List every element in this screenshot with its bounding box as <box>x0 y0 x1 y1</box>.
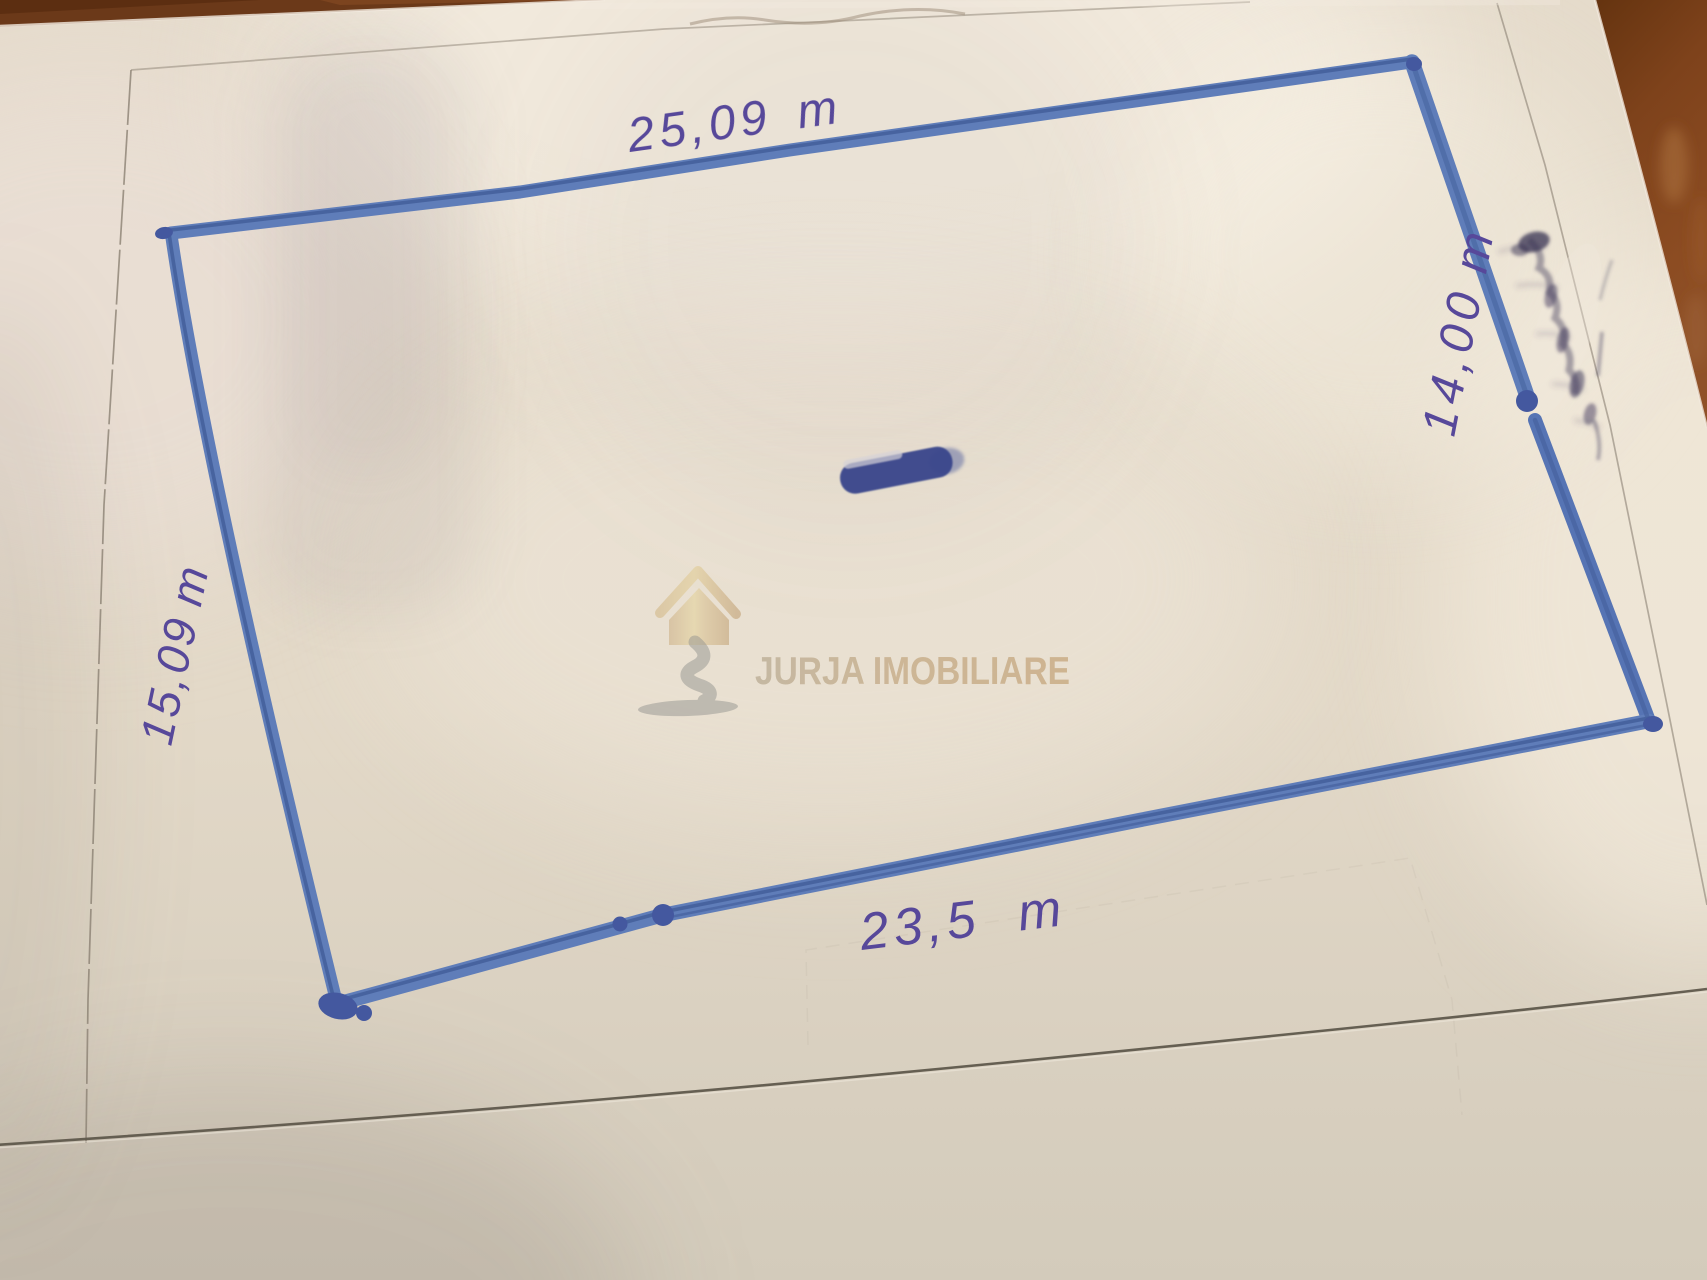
svg-text:15,09m: 15,09m <box>130 562 218 749</box>
svg-text:JURJA IMOBILIARE: JURJA IMOBILIARE <box>755 650 1070 693</box>
svg-text:14,00m: 14,00m <box>1413 228 1504 440</box>
svg-text:23,5m: 23,5m <box>855 880 1064 962</box>
